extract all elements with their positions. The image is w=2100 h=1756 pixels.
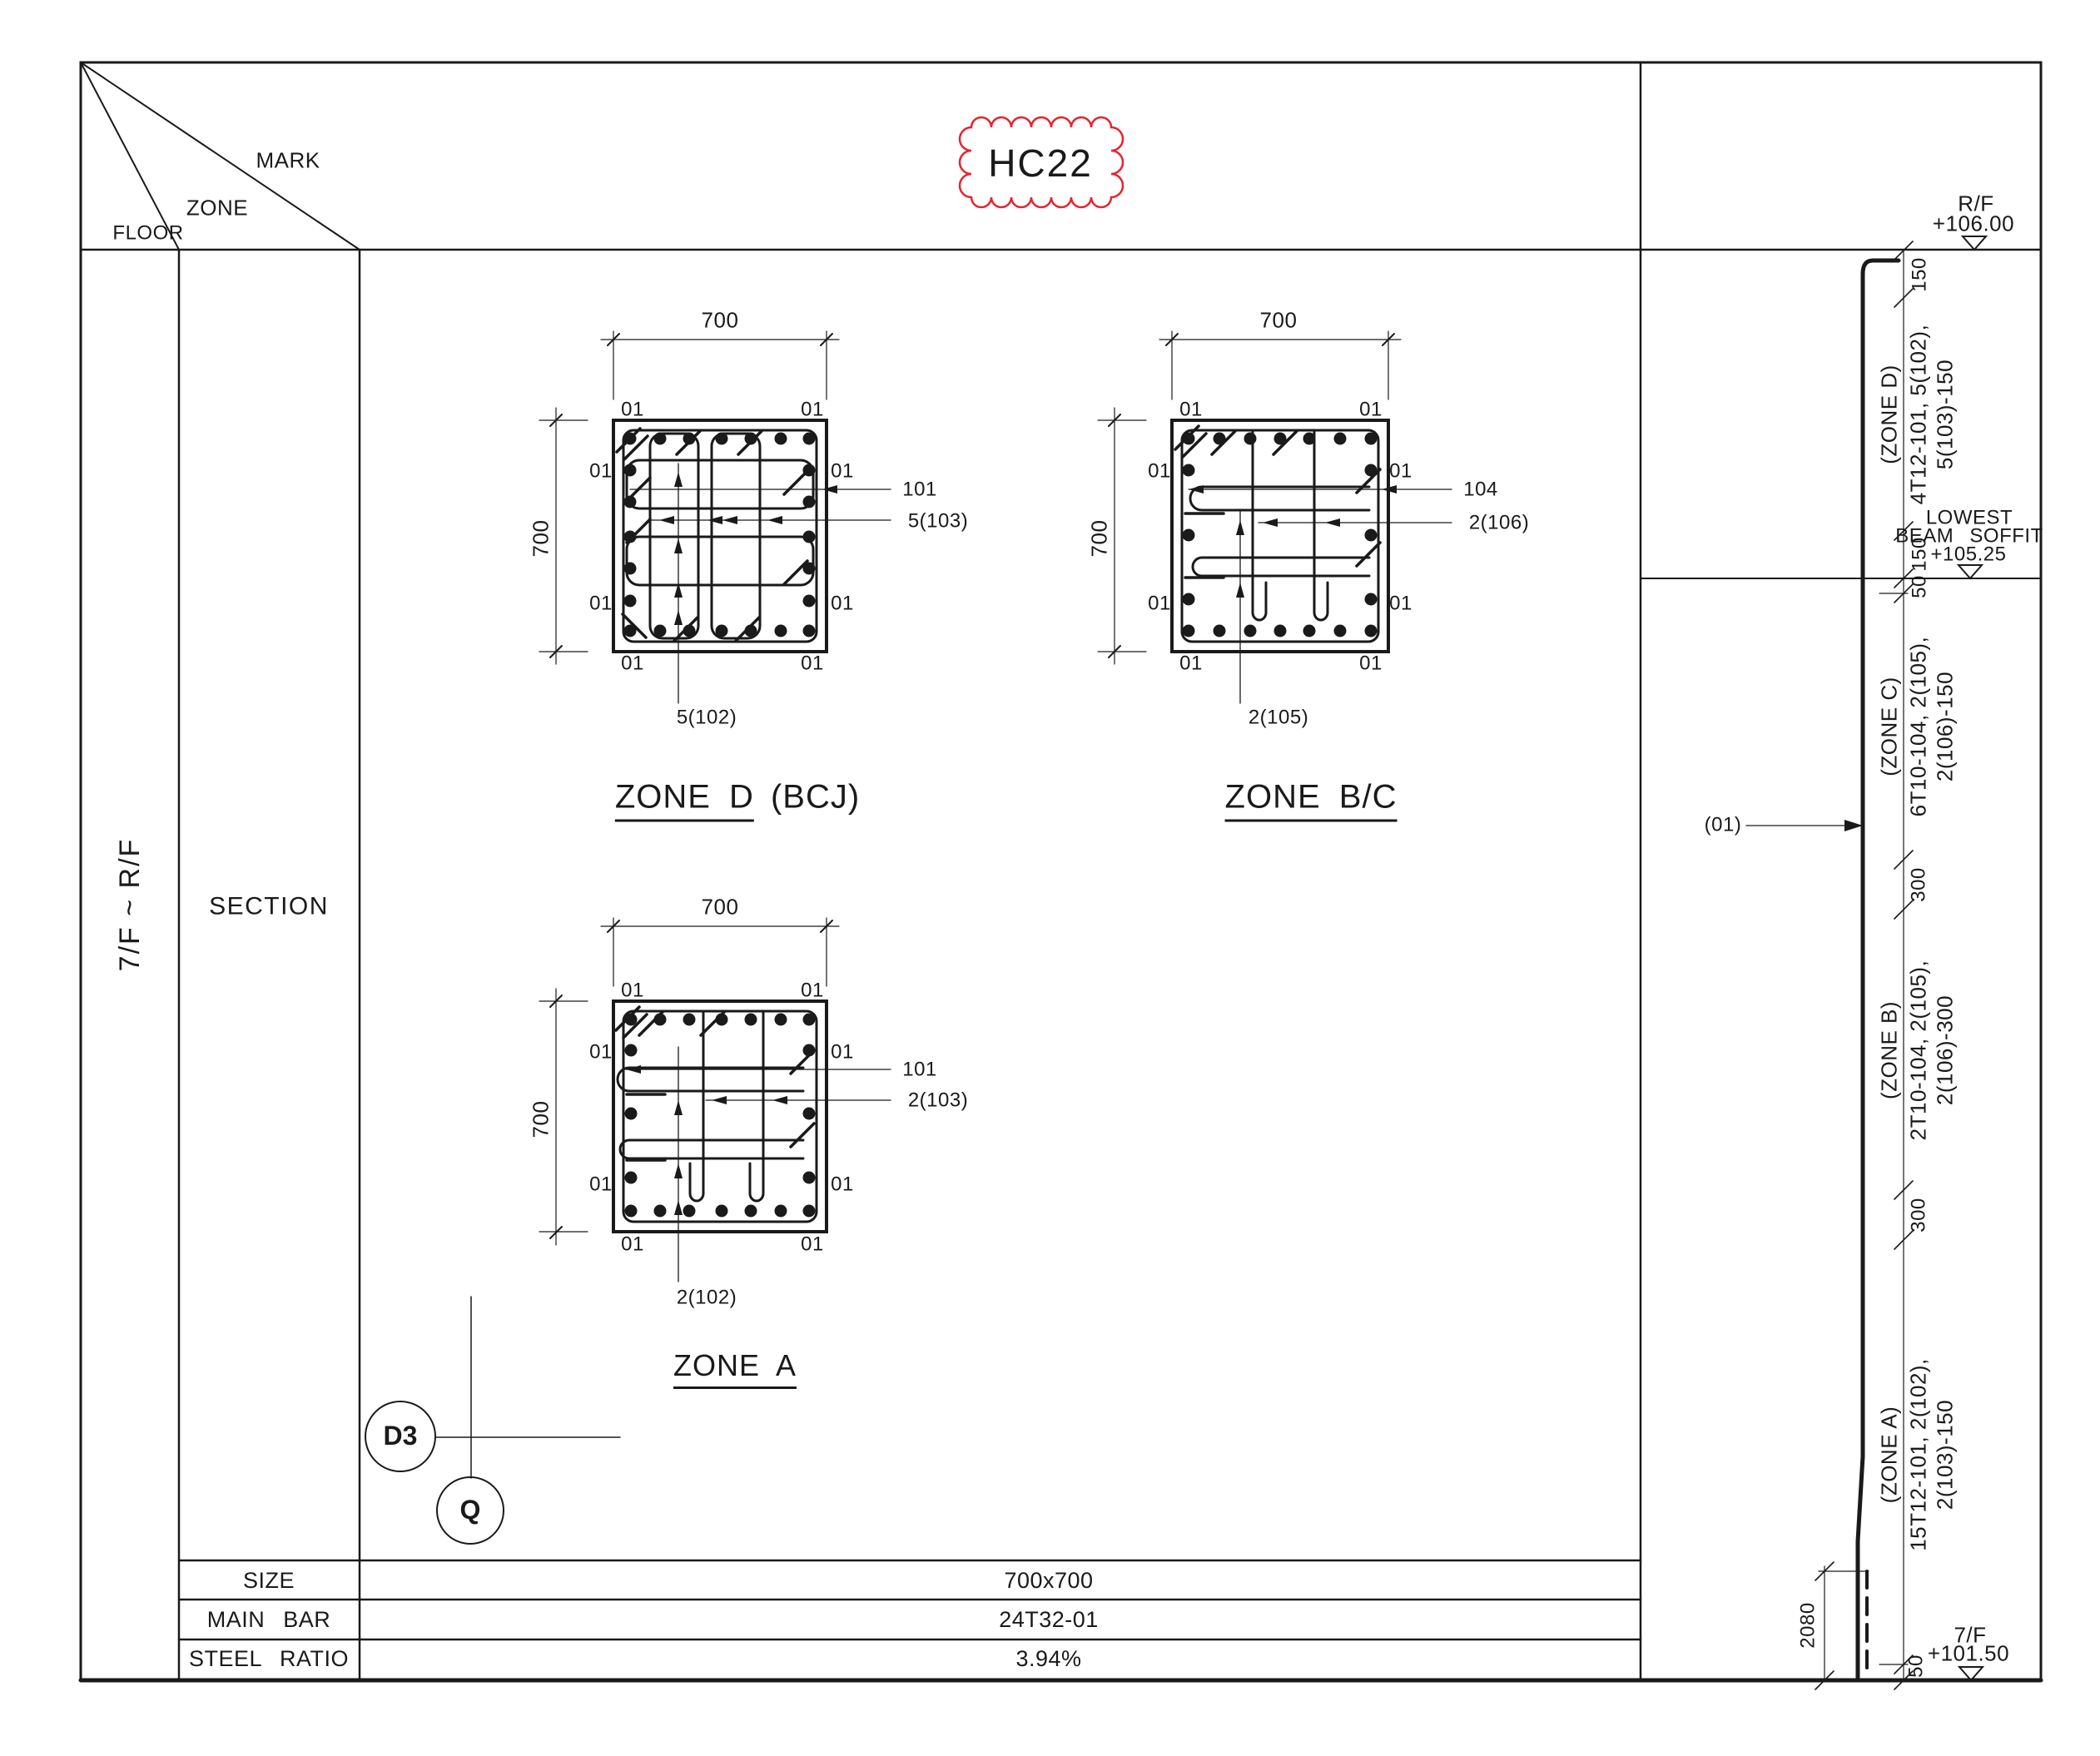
bar-ref-arrow (1844, 820, 1863, 831)
table-borders (81, 62, 2041, 1680)
header-floor-label: FLOOR (112, 222, 183, 243)
level-roof-value: +106.00 (1933, 212, 2014, 235)
section-label: SECTION (209, 893, 329, 920)
elev-zone-spec: 6T10-104, 2(105), (1907, 637, 1929, 817)
elev-zone-spec: 2(106)-300 (1934, 995, 1956, 1105)
elev-zone-spec: 5(103)-150 (1934, 360, 1956, 469)
section-zone-d (539, 331, 891, 703)
elev-zone-spec: 4T12-101, 5(102), (1907, 325, 1929, 505)
section-zone-a (539, 918, 891, 1282)
bar-mark: 01 (831, 593, 854, 613)
bar-mark: 01 (801, 652, 824, 673)
steel-ratio-value: 3.94% (1015, 1647, 1081, 1670)
bar-mark: 01 (621, 652, 644, 673)
leader-label: 5(103) (908, 510, 968, 531)
elev-dim: 150 (1909, 257, 1929, 292)
bar-mark: 01 (621, 1233, 644, 1254)
title-suffix: (BCJ) (771, 779, 860, 816)
bar-ref-label: (01) (1705, 814, 1742, 835)
bar-mark: 01 (621, 399, 644, 419)
leader-label: 2(106) (1469, 512, 1529, 533)
elev-zone-spec: 2T10-104, 2(105), (1907, 960, 1929, 1141)
bar-mark: 01 (1389, 460, 1412, 481)
leader-label: 101 (902, 1059, 937, 1079)
main-bar-label: MAIN BAR (207, 1608, 331, 1631)
title-main: ZONE A (673, 1348, 797, 1389)
leader-label: 2(102) (677, 1287, 737, 1307)
elev-zone-name: (ZONE C) (1878, 677, 1900, 776)
elev-zone-spec: 2(106)-150 (1934, 672, 1956, 781)
section-title-zone-a: ZONE A (673, 1348, 797, 1383)
elev-zone-name: (ZONE B) (1878, 1001, 1900, 1099)
elev-dim: 2080 (1797, 1602, 1818, 1648)
bar-mark: 01 (1179, 652, 1203, 673)
header-zone-label: ZONE (186, 196, 248, 219)
dim-700-left: 700 (529, 1101, 552, 1138)
drawing-linework (0, 0, 2100, 1756)
leader-label: 101 (902, 479, 937, 499)
leaders (626, 1047, 891, 1282)
drawing-sheet: FLOOR ZONE MARK HC22 7/F ~ R/F SECTION S… (0, 0, 2100, 1756)
main-bar-dots (625, 1014, 816, 1218)
elev-zone-spec: 2(103)-150 (1934, 1400, 1956, 1510)
bar-mark: 01 (589, 1041, 613, 1062)
level-triangle-soffit (1959, 565, 1982, 578)
elevation (1641, 236, 2041, 1689)
elev-dim: 150 (1909, 537, 1929, 572)
bar-mark: 01 (801, 980, 824, 1000)
elev-zone-name: (ZONE D) (1878, 365, 1900, 464)
bar-mark: 01 (801, 399, 824, 419)
dim-700-top: 700 (1260, 309, 1298, 331)
bar-mark: 01 (831, 1041, 854, 1062)
size-label: SIZE (243, 1569, 295, 1592)
elev-dim: 50 (1909, 575, 1929, 598)
section-title-zone-bc: ZONE B/C (1225, 779, 1398, 816)
title-main: ZONE B/C (1225, 779, 1398, 822)
floor-range-label: 7/F ~ R/F (116, 838, 146, 972)
leader-arrows (1189, 485, 1397, 598)
mark-value: HC22 (988, 143, 1093, 183)
bar-mark: 01 (801, 1233, 824, 1254)
leader-label: 104 (1463, 479, 1498, 499)
dimension-lines (1098, 331, 1401, 664)
level-7f-value: +101.50 (1928, 1642, 2009, 1664)
grid-bubble-d3: D3 (384, 1422, 418, 1451)
elev-dim: 300 (1908, 867, 1929, 902)
bar-mark: 01 (1359, 652, 1383, 673)
dim-700-top: 700 (702, 309, 739, 331)
size-value: 700x700 (1004, 1569, 1093, 1592)
bar-mark: 01 (1148, 593, 1171, 613)
leader-label: 2(105) (1249, 707, 1308, 727)
main-bar-dots (1183, 433, 1378, 637)
header-mark-label: MARK (256, 149, 320, 171)
bar-mark: 01 (589, 460, 613, 481)
bar-mark: 01 (589, 1173, 613, 1194)
level-triangle-roof (1963, 236, 1986, 250)
bar-mark: 01 (589, 593, 613, 613)
bar-mark: 01 (831, 460, 854, 481)
main-bar-dots (624, 433, 816, 637)
grid-bubble-q: Q (460, 1496, 481, 1525)
bar-mark: 01 (1179, 399, 1203, 419)
elev-dim: 300 (1908, 1198, 1929, 1233)
dim-700-left: 700 (529, 520, 552, 558)
steel-ratio-label: STEEL RATIO (189, 1647, 349, 1670)
bar-mark: 01 (621, 980, 644, 1000)
level-soffit-value: +105.25 (1931, 543, 2007, 564)
elev-zone-spec: 15T12-101, 2(102), (1907, 1358, 1929, 1551)
title-main: ZONE D (615, 779, 754, 822)
section-title-zone-d: ZONE D(BCJ) (615, 779, 860, 816)
dim-700-top: 700 (702, 895, 739, 918)
bar-mark: 01 (831, 1173, 854, 1194)
dim-700-left: 700 (1088, 520, 1110, 558)
bar-mark: 01 (1148, 460, 1171, 481)
stirrup-hooks (616, 1007, 814, 1160)
leader-label: 5(102) (677, 707, 737, 727)
main-bar-value: 24T32-01 (999, 1608, 1099, 1631)
dimension-lines (539, 331, 839, 664)
stirrup-hooks (1175, 426, 1380, 578)
elev-zone-name: (ZONE A) (1878, 1406, 1900, 1504)
bar-mark: 01 (1389, 593, 1412, 613)
elev-dim: 50 (1905, 1654, 1926, 1678)
section-zone-bc (1098, 331, 1452, 703)
leader-label: 2(103) (908, 1089, 968, 1110)
bar-mark: 01 (1359, 399, 1383, 419)
